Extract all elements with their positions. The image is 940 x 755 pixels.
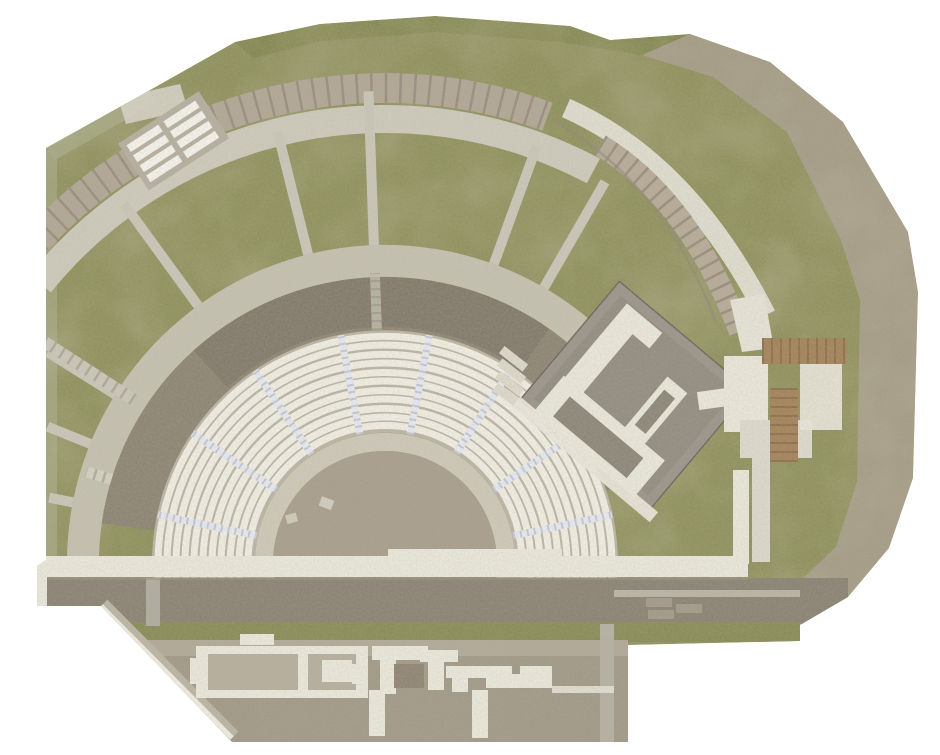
theatre-site-plan — [0, 0, 940, 755]
site-plan-figure — [0, 0, 940, 755]
scene-layers — [0, 0, 940, 755]
surface-grain — [0, 0, 940, 755]
